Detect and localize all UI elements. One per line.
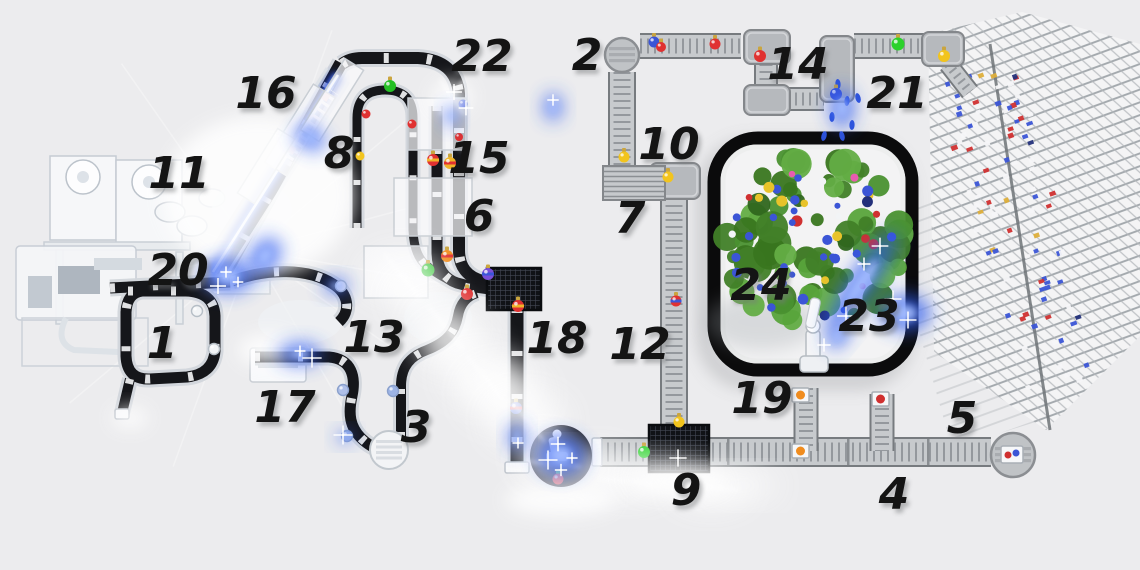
tree-ornament bbox=[770, 214, 777, 221]
ornament-ball bbox=[408, 120, 417, 129]
turntable bbox=[609, 53, 635, 56]
ornament-box bbox=[792, 444, 809, 458]
sparkle bbox=[823, 344, 826, 347]
turntable bbox=[376, 457, 402, 460]
station-number: 23 bbox=[838, 291, 899, 342]
station-number: 17 bbox=[254, 382, 316, 433]
tree-ornament bbox=[790, 195, 799, 204]
sparkle bbox=[677, 457, 680, 460]
sparkle bbox=[217, 285, 220, 288]
sparkle bbox=[237, 281, 240, 284]
ornament-ball bbox=[192, 306, 203, 317]
belt-divider bbox=[727, 439, 730, 465]
tree-ornament bbox=[861, 234, 870, 243]
tree-ornament bbox=[873, 211, 880, 218]
tree-ornament bbox=[853, 249, 861, 257]
tree-ornament bbox=[794, 174, 802, 182]
tree-ornament bbox=[801, 200, 808, 207]
machine-part bbox=[28, 276, 52, 308]
tree-ornament bbox=[862, 196, 873, 207]
tree-ornament bbox=[746, 194, 753, 201]
station-number: 9 bbox=[671, 465, 702, 516]
tree-ornament bbox=[791, 207, 798, 214]
station-number: 5 bbox=[947, 393, 978, 444]
sparkle bbox=[571, 457, 574, 460]
package-box bbox=[1001, 446, 1023, 463]
sparkle bbox=[225, 271, 228, 274]
belt-divider bbox=[927, 439, 930, 465]
station-number: 8 bbox=[324, 128, 355, 179]
station-number: 22 bbox=[451, 31, 512, 82]
tree-ornament bbox=[834, 203, 840, 209]
station-number: 16 bbox=[235, 68, 296, 119]
ornament-ball bbox=[338, 385, 349, 396]
turntable bbox=[376, 451, 402, 454]
glow-blue-core bbox=[330, 282, 342, 289]
sparkle bbox=[560, 469, 563, 472]
tree-ornament bbox=[820, 253, 827, 260]
tree-ornament bbox=[729, 231, 736, 238]
sparkle bbox=[863, 263, 866, 266]
tree-ornament bbox=[755, 194, 763, 202]
glow-blue-core bbox=[513, 431, 520, 444]
turntable bbox=[609, 59, 635, 62]
christmas-tree bbox=[811, 213, 824, 226]
tree-ornament bbox=[789, 219, 796, 226]
station-number: 24 bbox=[730, 260, 791, 311]
snow-burst bbox=[112, 408, 148, 428]
sparkle bbox=[342, 434, 345, 437]
station-number: 20 bbox=[147, 245, 208, 296]
tree-ornament bbox=[821, 276, 829, 284]
station-number: 12 bbox=[609, 319, 670, 370]
station-number: 1 bbox=[147, 318, 178, 369]
station-number: 14 bbox=[767, 39, 828, 90]
turntable bbox=[609, 47, 635, 50]
tree-ornament bbox=[763, 182, 774, 193]
tree-ornament bbox=[733, 213, 741, 221]
snow-burst bbox=[505, 484, 615, 516]
station-number: 13 bbox=[343, 312, 404, 363]
tree-ornament bbox=[829, 254, 836, 261]
tree-ornament bbox=[745, 232, 753, 240]
turntable bbox=[376, 446, 402, 449]
sparkle bbox=[879, 245, 882, 248]
station-number: 2 bbox=[572, 30, 603, 81]
christmas-tree bbox=[783, 182, 798, 197]
glow-blue-core bbox=[837, 99, 848, 117]
sparkle bbox=[552, 99, 555, 102]
factory-scene-svg: 1122334455667788991010111112121313141415… bbox=[0, 0, 1140, 570]
tree-ornament bbox=[818, 177, 826, 185]
station-number: 15 bbox=[448, 133, 509, 184]
sparkle bbox=[907, 319, 910, 322]
sparkle bbox=[557, 443, 560, 446]
station-number: 19 bbox=[731, 373, 792, 424]
sparkle bbox=[547, 459, 550, 462]
station-number: 10 bbox=[638, 119, 699, 170]
tree-ornament bbox=[862, 186, 873, 197]
station-number: 21 bbox=[866, 68, 927, 119]
ornament-box bbox=[872, 392, 889, 406]
sparkle bbox=[453, 91, 456, 94]
station-number: 3 bbox=[401, 402, 432, 453]
decorator-robot bbox=[800, 356, 828, 372]
ornament-ball bbox=[209, 344, 220, 355]
tree-ornament bbox=[776, 196, 787, 207]
tree-ornament bbox=[798, 294, 809, 305]
tree-ornament bbox=[822, 235, 832, 245]
sparkle bbox=[311, 357, 314, 360]
belt-divider bbox=[847, 439, 850, 465]
station-number: 4 bbox=[878, 469, 910, 520]
turntable bbox=[376, 440, 402, 443]
christmas-tree bbox=[858, 216, 873, 231]
christmas-factory-illustration: 1122334455667788991010111112121313141415… bbox=[0, 0, 1140, 570]
station-number: 6 bbox=[464, 191, 495, 242]
sparkle bbox=[299, 350, 302, 353]
machine-part bbox=[94, 258, 142, 270]
station-number: 18 bbox=[526, 313, 587, 364]
sparkle bbox=[465, 107, 468, 110]
glow-blue-core bbox=[550, 446, 572, 464]
tree-ornament bbox=[850, 174, 858, 182]
tree-ornament bbox=[836, 213, 842, 219]
sparkle bbox=[517, 442, 520, 445]
station-number: 11 bbox=[148, 148, 209, 199]
tree-ornament bbox=[832, 231, 842, 241]
machine-part bbox=[58, 266, 100, 294]
machine-part bbox=[77, 171, 89, 183]
station-number: 7 bbox=[615, 193, 646, 244]
glow-blue-core bbox=[449, 112, 455, 121]
ornament-ball bbox=[388, 386, 399, 397]
tree-ornament bbox=[789, 171, 796, 178]
tree-ornament bbox=[820, 310, 830, 320]
ornament-ball bbox=[362, 110, 371, 119]
